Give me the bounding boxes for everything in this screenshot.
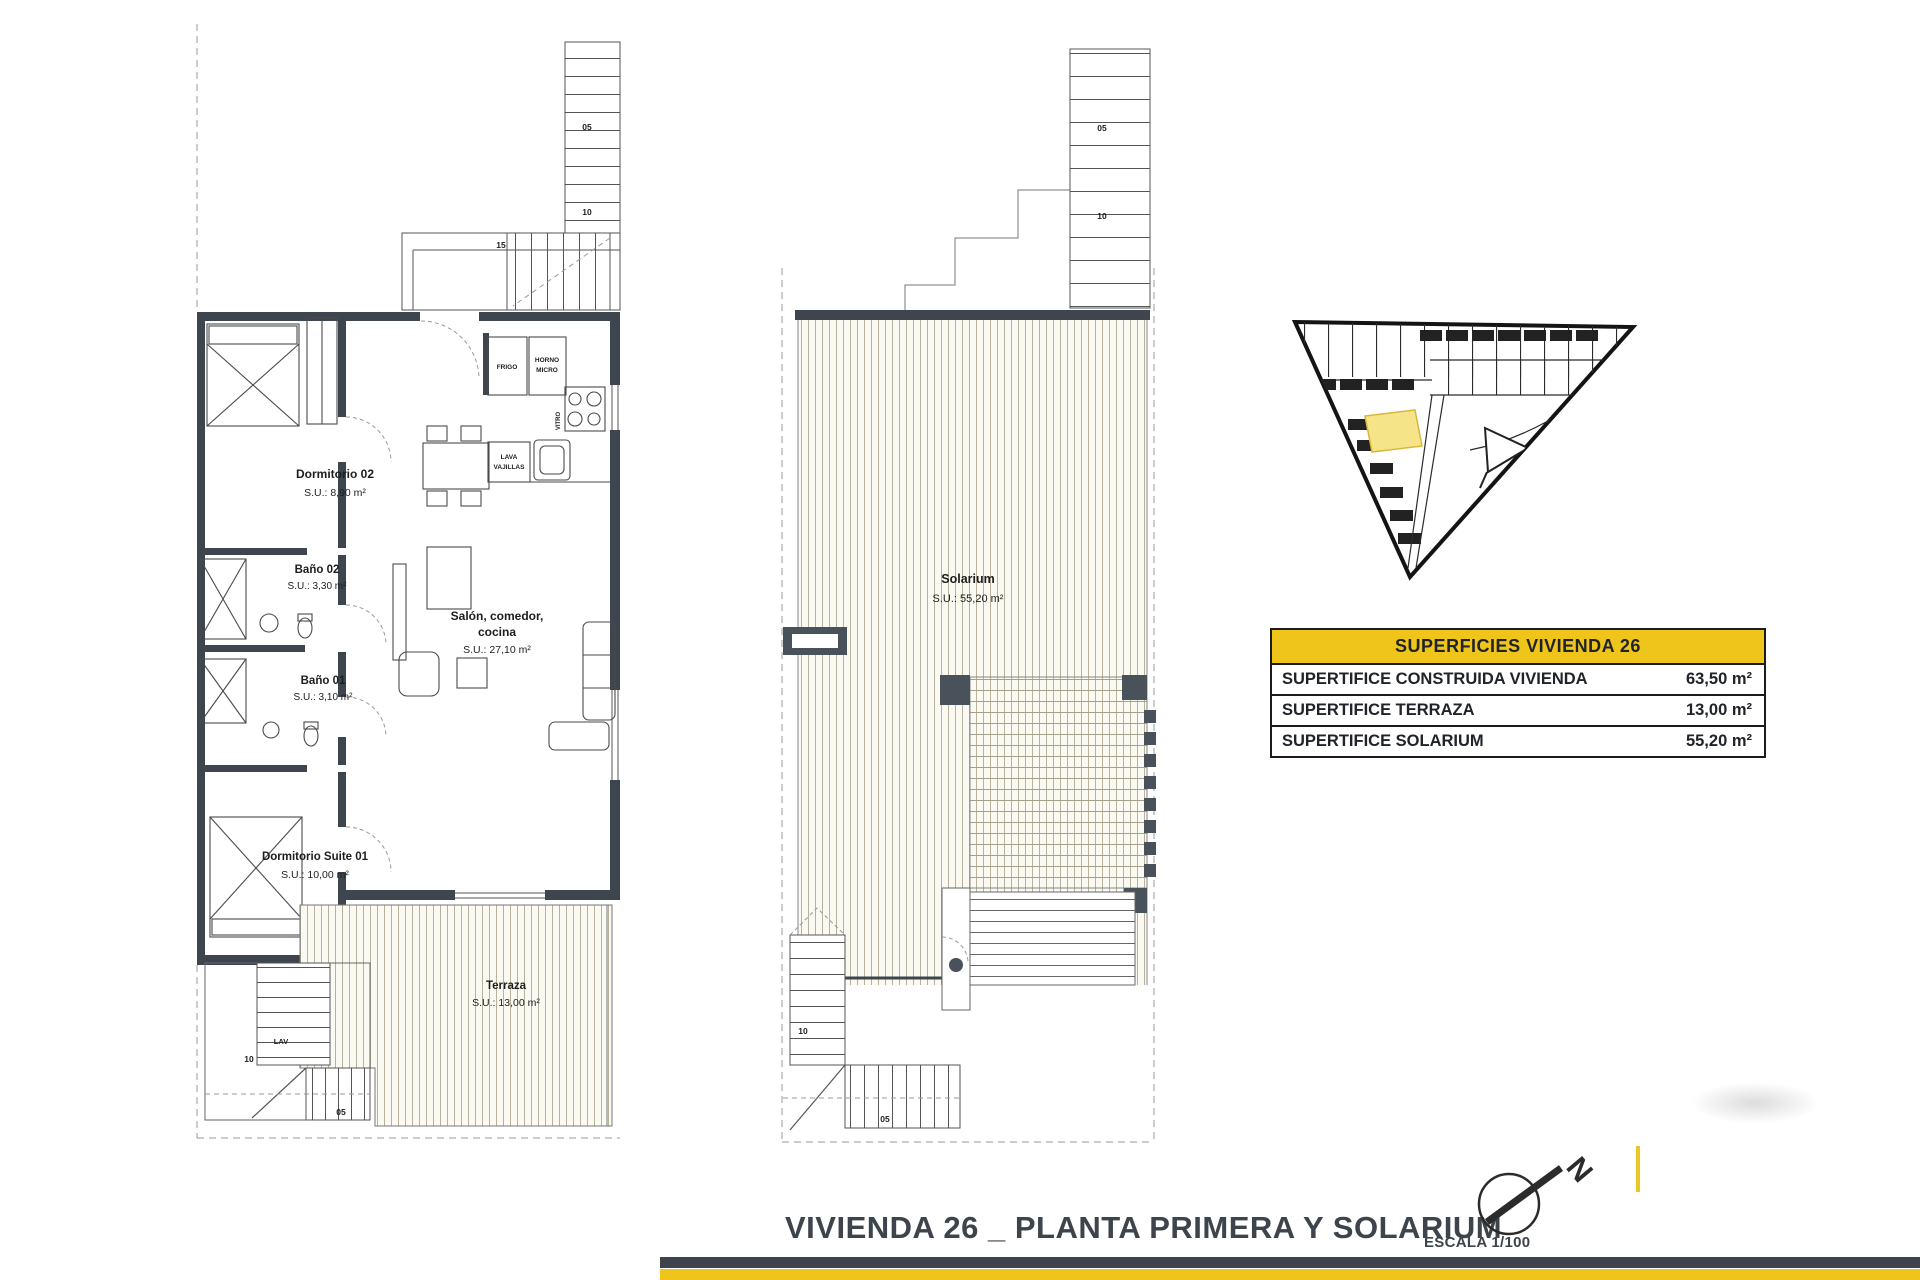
bedroom-02: Dormitorio 02 S.U.: 8,90 m²	[207, 318, 374, 499]
fold-mark	[1636, 1146, 1640, 1192]
site-plan	[1280, 300, 1660, 600]
stair-number: 05	[336, 1107, 346, 1117]
living-dining: Salón, comedor, cocina S.U.: 27,10 m²	[393, 426, 615, 750]
room-name-line2: cocina	[478, 625, 516, 639]
dishwasher	[488, 442, 530, 482]
stair-landing	[942, 888, 970, 1010]
page-title: VIVIENDA 26 _ PLANTA PRIMERA Y SOLARIUM	[785, 1210, 1502, 1246]
bathroom-02: Baño 02 S.U.: 3,30 m²	[200, 559, 347, 639]
room-area: S.U.: 13,00 m²	[472, 997, 540, 1009]
fridge-label: FRIGO	[497, 364, 518, 371]
stair-number: 10	[244, 1054, 254, 1064]
solarium-wide-stair	[942, 888, 1135, 1010]
hob-label: VITRO	[556, 412, 562, 431]
oven-label-1: HORNO	[535, 357, 559, 364]
bathroom-01: Baño 01 S.U.: 3,10 m²	[200, 659, 353, 746]
dining-table	[423, 443, 489, 489]
chair	[461, 491, 481, 506]
footer-bar-dark	[660, 1257, 1920, 1268]
tv-bench	[393, 564, 406, 660]
pergola	[940, 675, 1156, 913]
stair-number: 05	[582, 122, 592, 132]
rug	[427, 547, 471, 609]
surface-label: SUPERTIFICE CONSTRUIDA VIVIENDA	[1282, 670, 1588, 689]
stair-number: 10	[1097, 211, 1107, 221]
room-area: S.U.: 55,20 m²	[933, 593, 1004, 605]
stair-number: 05	[880, 1114, 890, 1124]
floor-plan-first-floor: 05 10 15	[195, 22, 625, 1140]
room-name: Dormitorio Suite 01	[262, 851, 369, 863]
room-name-line1: Salón, comedor,	[451, 609, 544, 623]
kitchen-area: FRIGO HORNO MICRO VITRO LAVA VAJILLAS	[488, 337, 610, 482]
pergola-post	[1122, 675, 1147, 700]
planter-box	[783, 627, 847, 655]
room-name: Baño 01	[301, 675, 346, 687]
dishwasher-label-2: VAJILLAS	[494, 464, 526, 471]
surface-value: 55,20 m²	[1686, 732, 1752, 751]
external-staircase-top: 05 10 15	[402, 42, 620, 310]
drawing-sheet: 05 10 15	[0, 0, 1920, 1280]
room-name: Dormitorio 02	[296, 467, 374, 481]
room-area: S.U.: 3,30 m²	[288, 581, 348, 592]
room-area: S.U.: 27,10 m²	[463, 644, 531, 656]
pergola-post	[940, 675, 970, 705]
armchair	[399, 652, 439, 696]
surface-value: 63,50 m²	[1686, 670, 1752, 689]
dishwasher-label-1: LAVA	[501, 454, 518, 461]
table-row: SUPERTIFICE CONSTRUIDA VIVIENDA 63,50 m²	[1272, 665, 1764, 696]
walls	[197, 312, 620, 965]
room-name: Solarium	[941, 572, 995, 586]
table-row: SUPERTIFICE SOLARIUM 55,20 m²	[1272, 727, 1764, 756]
washbasin	[260, 614, 278, 632]
north-arrow-icon: N	[1475, 1142, 1605, 1242]
chair	[461, 426, 481, 441]
footer-bar-yellow	[660, 1269, 1920, 1280]
bed	[207, 324, 299, 426]
oven-micro	[529, 337, 566, 395]
room-name: Terraza	[486, 980, 527, 992]
sofa-chaise	[549, 722, 609, 750]
washbasin	[263, 722, 279, 738]
side-table	[457, 658, 487, 688]
room-name: Baño 02	[295, 564, 340, 576]
table-row: SUPERTIFICE TERRAZA 13,00 m²	[1272, 696, 1764, 727]
room-area: S.U.: 10,00 m²	[281, 869, 349, 881]
floor-plan-solarium: 05 10 Solarium S.U.: 55,20 m²	[640, 30, 1180, 1160]
print-smudge	[1690, 1082, 1820, 1124]
oven-label-2: MICRO	[536, 367, 558, 374]
north-letter: N	[1560, 1151, 1599, 1189]
surface-value: 13,00 m²	[1686, 701, 1752, 720]
chair	[427, 491, 447, 506]
laundry-label: LAV	[274, 1037, 288, 1046]
highlighted-unit-26	[1365, 410, 1422, 452]
stair-number: 10	[582, 207, 592, 217]
room-area: S.U.: 3,10 m²	[294, 692, 354, 703]
stair-number: 10	[798, 1026, 808, 1036]
roof-staircase-top: 05 10	[905, 49, 1150, 313]
surface-label: SUPERTIFICE TERRAZA	[1282, 701, 1475, 720]
room-area: S.U.: 8,90 m²	[304, 487, 366, 499]
surfaces-table: SUPERFICIES VIVIENDA 26 SUPERTIFICE CONS…	[1270, 628, 1766, 758]
surfaces-table-header: SUPERFICIES VIVIENDA 26	[1272, 630, 1764, 665]
stair-number: 05	[1097, 123, 1107, 133]
door-swings	[346, 321, 479, 872]
column	[949, 958, 963, 972]
windows	[455, 385, 622, 898]
stair-number: 15	[496, 240, 506, 250]
chair	[427, 426, 447, 441]
surface-label: SUPERTIFICE SOLARIUM	[1282, 732, 1484, 751]
